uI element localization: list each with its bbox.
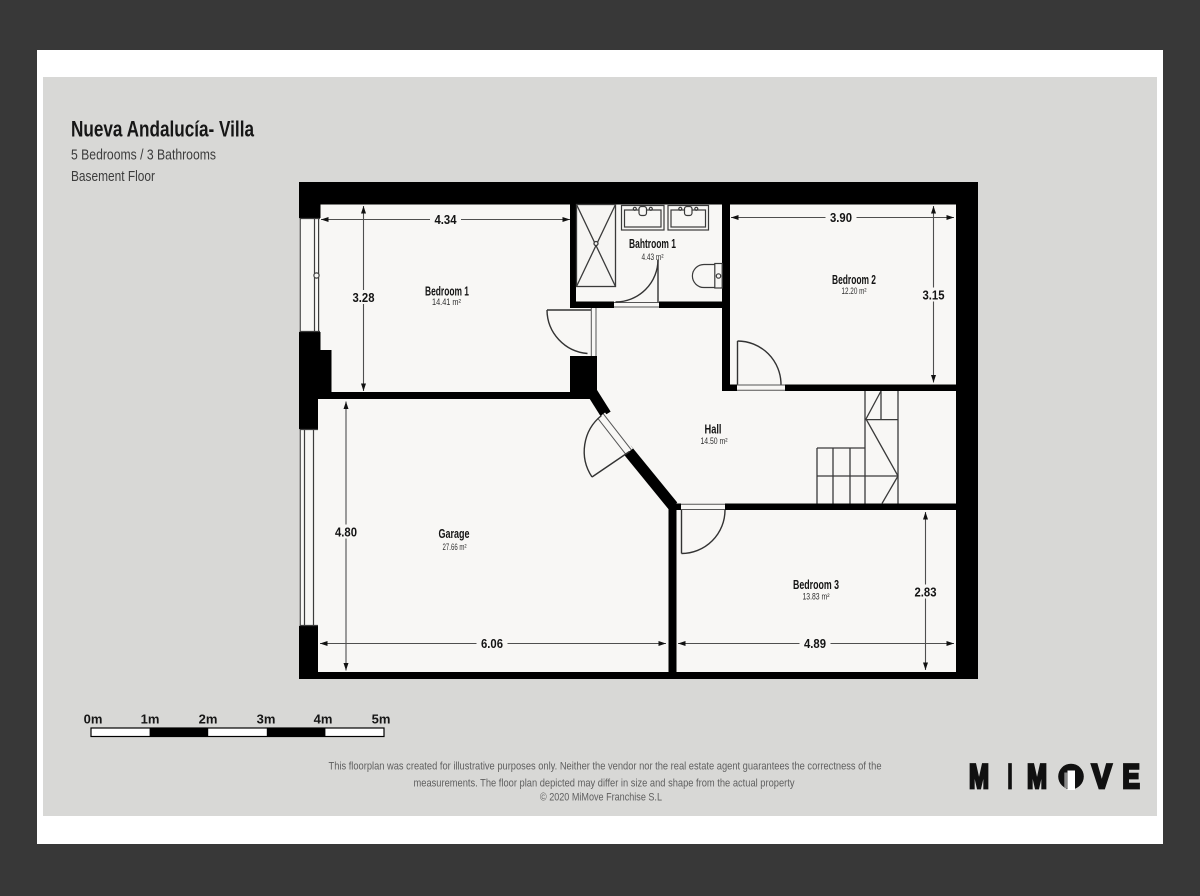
svg-text:M: M: [969, 758, 989, 796]
svg-text:Basement Floor: Basement Floor: [71, 169, 155, 185]
svg-text:M: M: [1027, 758, 1047, 796]
svg-text:Garage: Garage: [439, 527, 470, 541]
svg-text:4.80: 4.80: [335, 524, 357, 539]
svg-text:Bahtroom 1: Bahtroom 1: [629, 237, 676, 251]
svg-text:0m: 0m: [84, 712, 103, 727]
svg-text:3.15: 3.15: [923, 287, 945, 302]
svg-text:V: V: [1092, 758, 1112, 796]
svg-text:4.34: 4.34: [435, 212, 458, 227]
svg-text:6.06: 6.06: [481, 636, 503, 651]
svg-text:© 2020 MiMove Franchise S.L: © 2020 MiMove Franchise S.L: [540, 792, 662, 804]
svg-text:3m: 3m: [257, 712, 276, 727]
svg-text:I: I: [1008, 758, 1013, 796]
svg-text:This floorplan was created for: This floorplan was created for illustrat…: [329, 761, 882, 773]
svg-text:Bedroom 2: Bedroom 2: [832, 273, 876, 287]
svg-text:Hall: Hall: [705, 423, 722, 437]
svg-text:4m: 4m: [314, 712, 333, 727]
svg-text:4.89: 4.89: [804, 636, 826, 651]
svg-text:E: E: [1122, 758, 1140, 796]
svg-text:1m: 1m: [141, 712, 160, 727]
svg-text:13.83 m²: 13.83 m²: [803, 592, 830, 602]
svg-text:14.50 m²: 14.50 m²: [701, 436, 728, 446]
svg-text:3.90: 3.90: [830, 210, 852, 225]
svg-text:27.66 m²: 27.66 m²: [443, 542, 467, 552]
svg-text:4.43 m²: 4.43 m²: [642, 252, 664, 262]
svg-text:3.28: 3.28: [353, 290, 375, 305]
svg-text:12.20 m²: 12.20 m²: [842, 286, 867, 296]
svg-text:Nueva Andalucía- Villa: Nueva Andalucía- Villa: [71, 117, 254, 142]
svg-text:measurements. The floor plan d: measurements. The floor plan depicted ma…: [414, 778, 795, 790]
svg-text:Bedroom 3: Bedroom 3: [793, 578, 839, 592]
svg-text:5 Bedrooms / 3 Bathrooms: 5 Bedrooms / 3 Bathrooms: [71, 148, 216, 164]
svg-text:2.83: 2.83: [915, 584, 937, 599]
svg-text:14.41 m²: 14.41 m²: [432, 297, 461, 307]
svg-text:2m: 2m: [199, 712, 218, 727]
svg-text:5m: 5m: [372, 712, 391, 727]
